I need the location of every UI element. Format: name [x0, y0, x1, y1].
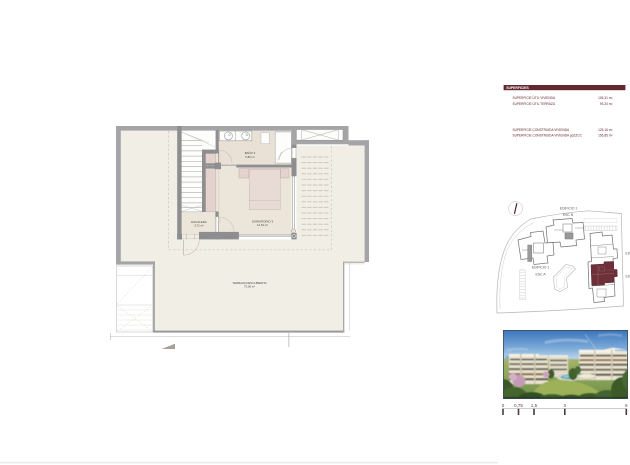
svg-text:SUPERFICIE CONSTRUIDA VIVIENDA: SUPERFICIE CONSTRUIDA VIVIENDA ppZZCC: [513, 133, 583, 137]
svg-text:156,85 m²: 156,85 m²: [598, 133, 612, 137]
svg-text:ESC A: ESC A: [536, 272, 547, 276]
svg-text:12,54 m²: 12,54 m²: [257, 223, 268, 227]
svg-text:106,31 m²: 106,31 m²: [598, 96, 612, 100]
svg-text:5,72 m²: 5,72 m²: [194, 223, 203, 227]
svg-text:5,80 m²: 5,80 m²: [245, 155, 255, 159]
svg-text:0,75: 0,75: [514, 403, 523, 408]
svg-text:SUPERFICIE CONSTRUIDA VIVIENDA: SUPERFICIE CONSTRUIDA VIVIENDA: [513, 128, 571, 132]
svg-text:SUPERFICIES: SUPERFICIES: [506, 86, 529, 90]
svg-text:EDIFICIO 1: EDIFICIO 1: [560, 206, 578, 210]
svg-text:3: 3: [564, 403, 567, 408]
svg-text:ESCALERA: ESCALERA: [191, 220, 206, 224]
svg-text:6: 6: [625, 403, 628, 408]
svg-text:SUPERFICIE ÚTIL VIVIENDA: SUPERFICIE ÚTIL VIVIENDA: [513, 95, 556, 100]
svg-text:ESC B: ESC B: [563, 213, 574, 217]
svg-text:EDIF: EDIF: [626, 252, 630, 256]
svg-text:1,5: 1,5: [531, 403, 538, 408]
svg-text:EDIFICIO 1: EDIFICIO 1: [532, 266, 550, 270]
svg-text:125,16 m²: 125,16 m²: [598, 128, 612, 132]
svg-text:93,34 m²: 93,34 m²: [600, 102, 613, 106]
svg-text:EDIF: EDIF: [626, 275, 630, 279]
svg-text:SUPERFICIE ÚTIL TERRAZA: SUPERFICIE ÚTIL TERRAZA: [513, 101, 556, 106]
svg-text:0: 0: [502, 403, 505, 408]
svg-text:73,06 m²: 73,06 m²: [244, 285, 255, 289]
